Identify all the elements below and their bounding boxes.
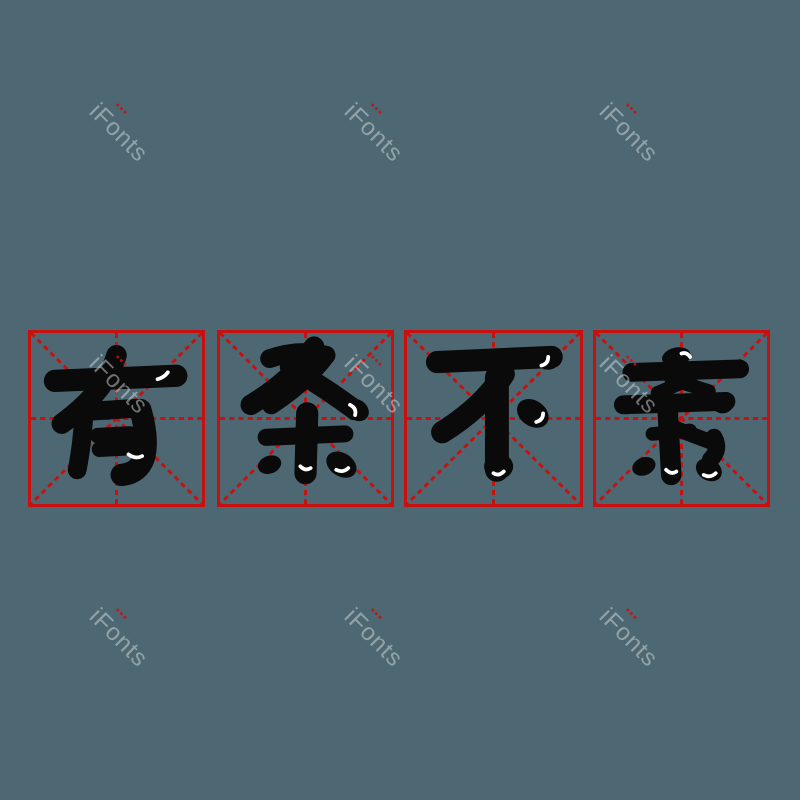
watermark-red-dots	[116, 608, 127, 619]
watermark-red-dots	[626, 103, 637, 114]
glyph-char-2-tiao	[220, 333, 391, 504]
mizige-box-2: 条	[217, 330, 394, 507]
watermark-text: iFonts	[594, 603, 664, 673]
font-preview-canvas: iFontsiFontsiFontsiFontsiFontsiFontsiFon…	[0, 0, 800, 800]
ifonts-watermark: iFonts	[593, 98, 663, 168]
watermark-text: iFonts	[594, 98, 664, 168]
watermark-text: iFonts	[84, 98, 154, 168]
ifonts-watermark: iFonts	[83, 98, 153, 168]
watermark-text: iFonts	[84, 603, 154, 673]
ifonts-watermark: iFonts	[338, 98, 408, 168]
watermark-text: iFonts	[339, 98, 409, 168]
ifonts-watermark: iFonts	[338, 603, 408, 673]
ifonts-watermark: iFonts	[593, 603, 663, 673]
mizige-box-4: 紊	[593, 330, 770, 507]
glyph-char-4-wen	[596, 333, 767, 504]
ifonts-watermark: iFonts	[83, 603, 153, 673]
glyph-char-1-you	[31, 333, 202, 504]
watermark-red-dots	[371, 608, 382, 619]
glyph-char-3-bu	[407, 333, 580, 504]
watermark-red-dots	[116, 103, 127, 114]
watermark-red-dots	[371, 103, 382, 114]
mizige-box-1: 有	[28, 330, 205, 507]
watermark-red-dots	[626, 608, 637, 619]
watermark-text: iFonts	[339, 603, 409, 673]
mizige-box-3: 不	[404, 330, 583, 507]
